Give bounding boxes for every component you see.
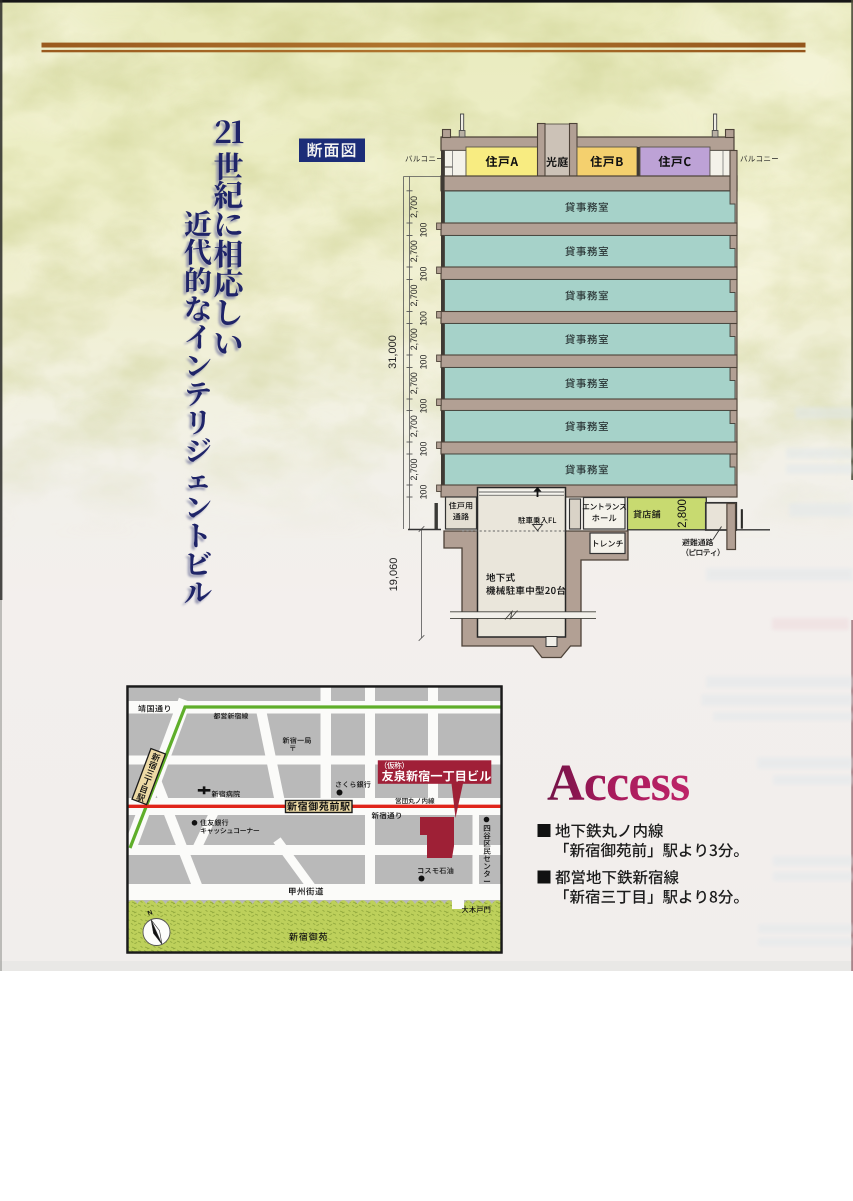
svg-text:2,700: 2,700 — [409, 458, 419, 480]
svg-text:100: 100 — [419, 223, 429, 238]
svg-text:2,700: 2,700 — [409, 196, 419, 218]
svg-text:2,700: 2,700 — [409, 284, 419, 306]
svg-text:2,700: 2,700 — [409, 415, 419, 437]
svg-text:19,060: 19,060 — [388, 558, 400, 592]
svg-text:2,700: 2,700 — [409, 240, 419, 262]
svg-text:Access: Access — [547, 755, 689, 812]
svg-text:31,000: 31,000 — [387, 335, 399, 369]
svg-text:2,800: 2,800 — [677, 499, 689, 528]
svg-text:2,700: 2,700 — [409, 372, 419, 394]
svg-text:100: 100 — [419, 311, 429, 326]
svg-text:100: 100 — [419, 355, 429, 370]
svg-text:100: 100 — [419, 399, 429, 414]
svg-text:100: 100 — [419, 442, 429, 457]
svg-text:100: 100 — [419, 267, 429, 282]
svg-text:100: 100 — [419, 485, 429, 500]
svg-text:2,700: 2,700 — [409, 328, 419, 350]
